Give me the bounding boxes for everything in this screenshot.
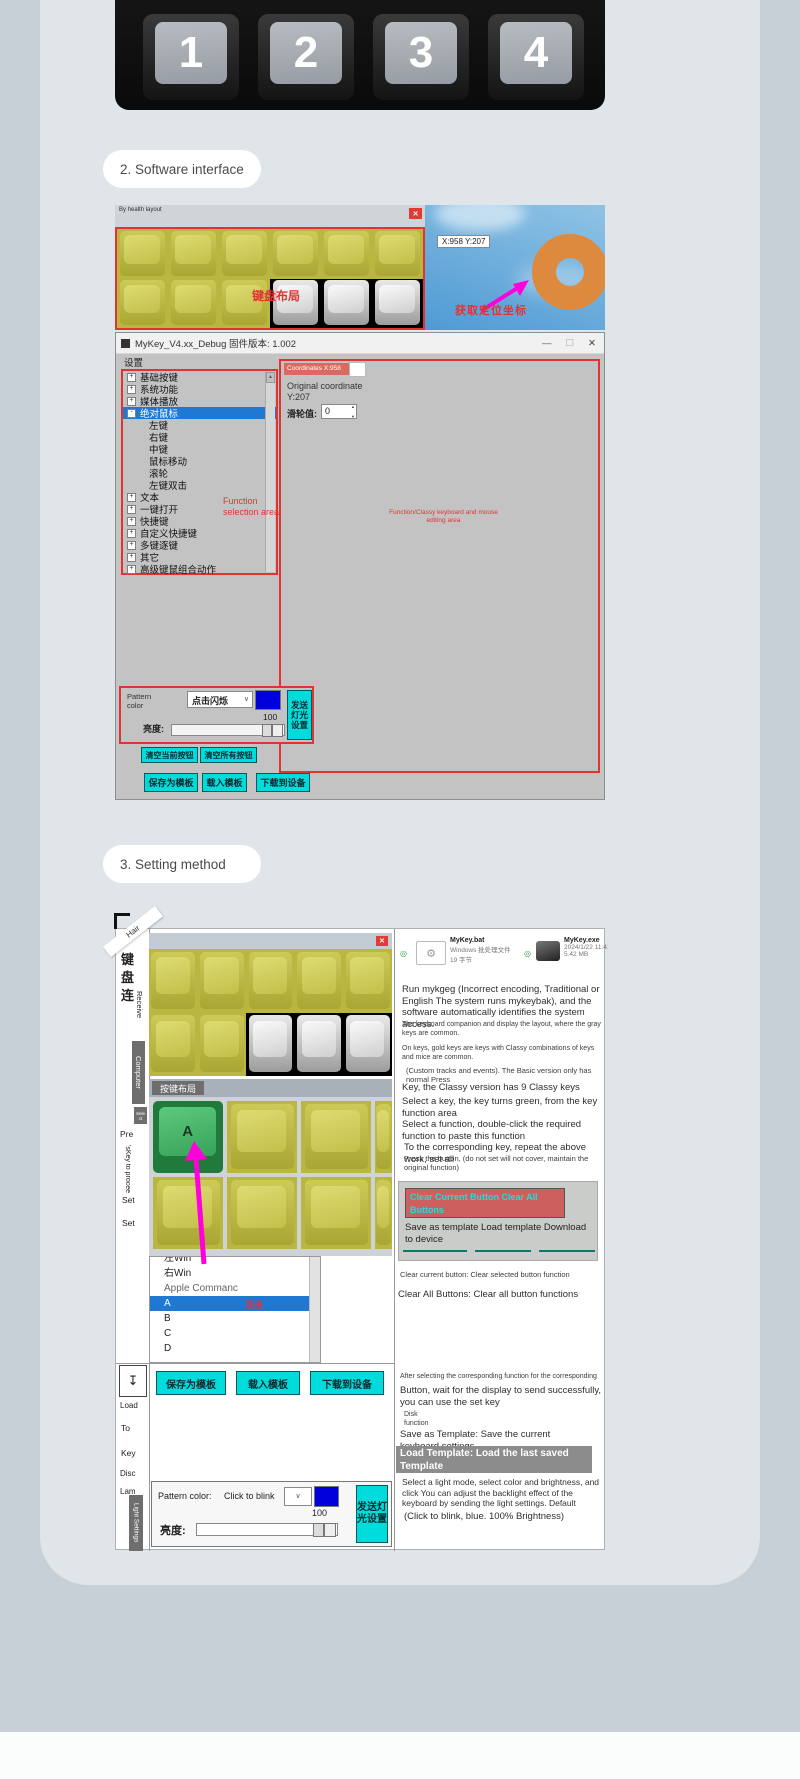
tree-item[interactable]: 鼠标移动 [123,455,276,467]
load-template-highlight: Load Template: Load the last saved Templ… [396,1446,592,1473]
clear-current-button[interactable]: 清空当前按钮 [141,747,198,763]
send-light-button[interactable]: 发送灯光设置 [356,1485,388,1543]
bullet-icon: ◎ [400,949,407,958]
expand-icon[interactable]: + [127,565,136,574]
color-swatch[interactable] [314,1486,339,1507]
expand-icon[interactable]: + [127,529,136,538]
mykey-window: MyKey_V4.xx_Debug 固件版本: 1.002 — ☐ ✕ 设置 +… [115,332,605,800]
expand-icon[interactable]: + [127,505,136,514]
brightness-label: 亮度: [143,722,164,735]
preview-key-grid: 键盘布局 [115,227,425,330]
brightness-value: 100 [312,1508,327,1518]
pattern-color-label: Pattern color: [158,1491,212,1501]
coordinates-input[interactable] [349,362,366,377]
list-item[interactable]: 右Win [150,1266,320,1281]
keycap-4: 4 [488,14,584,100]
keyboard-photo: 1 2 3 4 [115,0,605,110]
app-icon [121,339,130,348]
tree-item[interactable]: 右键 [123,431,276,443]
bullet-icon: ◎ [524,949,531,958]
expand-icon[interactable]: + [127,397,136,406]
mykey-titlebar: MyKey_V4.xx_Debug 固件版本: 1.002 — ☐ ✕ [116,333,604,354]
key-select-list: 左Win 右Win Apple Commanc A 双击 B C D [149,1256,321,1363]
close-icon[interactable]: ✕ [588,338,596,349]
collapse-icon[interactable]: - [127,409,136,418]
clear-buttons-label: Clear Current Button Clear All Buttons [405,1188,565,1218]
close-icon[interactable]: ✕ [409,208,422,219]
selected-key-green: A [153,1101,223,1173]
expand-icon[interactable]: + [127,385,136,394]
brightness-slider[interactable] [171,724,285,736]
sidebar-key-note: 'sKey to procee [124,1145,131,1220]
expand-icon[interactable]: + [127,373,136,382]
tree-item[interactable]: 中键 [123,443,276,455]
desktop-photo: X:958 Y:207 获取定位坐标 [425,205,605,330]
key-layout-window: 按键布局 A [149,1079,392,1256]
sidebar-light-settings: Light Settings [129,1495,143,1551]
spinner-down-icon[interactable]: ▼ [351,414,355,419]
section-2-title: 2. Software interface [103,150,261,188]
expand-icon[interactable]: + [127,493,136,502]
exe-file-icon [536,941,560,961]
list-item[interactable]: 左Win [150,1256,320,1266]
template-buttons-label: Save as template Load template Download … [405,1222,591,1246]
keycap-3: 3 [373,14,469,100]
download-icon: ↧ [119,1365,147,1397]
menu-settings[interactable]: 设置 [124,355,143,369]
pattern-color-label: Pattern color [127,692,167,710]
page: 1 2 3 4 2. Software interface By health … [0,0,800,1779]
save-template-button[interactable]: 保存为模板 [156,1371,226,1395]
sidebar-select: Sele ct [134,1107,147,1124]
setting-guide: Hair 键 盘 连 Receive Computer Sele ct Pre … [115,928,605,1550]
brightness-value: 100 [263,712,277,722]
preview-title: By health layout [119,207,189,214]
list-item[interactable]: Apple Commanc [150,1281,320,1296]
keycap-1-label: 1 [155,22,227,84]
guide-sidebar: 键 盘 连 Receive Computer Sele ct Pre 'sKey… [116,929,150,1551]
selected-key-label: A [159,1107,216,1156]
list-item[interactable]: C [150,1326,320,1341]
window-title: MyKey_V4.xx_Debug 固件版本: 1.002 [135,336,296,350]
bat-file-info: MyKey.bat Windows 批处理文件 19 字节 [450,937,520,964]
tree-annotation: Function selection area [223,496,281,518]
brightness-slider[interactable] [196,1523,338,1536]
list-scrollbar[interactable] [309,1257,320,1362]
pattern-color-value: Click to blink [224,1491,275,1501]
coordinates-header: Coordinates X:958 [284,363,349,375]
locate-coords-label: 获取定位坐标 [455,302,527,318]
disk-function-note: Disk function [404,1411,444,1428]
tree-item[interactable]: +高级键鼠组合动作 [123,563,276,575]
tree-item[interactable]: 左键 [123,419,276,431]
pattern-dropdown[interactable]: ∨ [284,1487,312,1506]
keycap-2-label: 2 [270,22,342,84]
section-3-title: 3. Setting method [103,845,261,883]
spinner-up-icon[interactable]: ▲ [351,404,355,409]
keycap-3-label: 3 [385,22,457,84]
tree-scrollbar[interactable]: ▲ [265,372,275,572]
expand-icon[interactable]: + [127,541,136,550]
keycap-1: 1 [143,14,239,100]
list-item[interactable]: B [150,1311,320,1326]
sidebar-receive: Receive [135,991,144,1018]
wheel-value: 0 [325,406,330,416]
expand-icon[interactable]: + [127,553,136,562]
close-icon: ✕ [376,936,388,946]
list-item[interactable]: D [150,1341,320,1356]
slider-handle[interactable] [313,1523,324,1537]
exe-file-info: MyKey.exe 2024/1/22 11:41 5.42 MB [564,937,608,958]
tree-item[interactable]: 滚轮 [123,467,276,479]
scroll-up-icon[interactable]: ▲ [266,372,275,383]
bat-file-icon: ⚙ [416,941,446,965]
clear-all-button[interactable]: 清空所有按钮 [200,747,257,763]
pattern-dropdown[interactable]: 点击闪烁 ∨ [187,691,253,708]
save-template-button[interactable]: 保存为模板 [144,773,198,792]
chevron-down-icon: ∨ [244,695,249,703]
list-annotation: 双击 [245,1298,263,1313]
light-panel-small: Pattern color: Click to blink ∨ 发送灯光设置 1… [151,1481,392,1547]
brightness-label: 亮度: [160,1522,186,1538]
light-panel: Pattern color 点击闪烁 ∨ 发送灯光设置 100 亮度: [119,686,314,744]
wheel-label: 滑轮值: [287,407,317,420]
editing-panel: Coordinates X:958 Original coordinate Y:… [279,359,600,773]
function-tree-panel: +基础按键 +系统功能 +媒体播放 -绝对鼠标 左键 右键 中键 鼠标移动 滚轮… [121,369,278,575]
key-layout-title: 按键布局 [152,1081,204,1095]
layout-preview-window: By health layout ✕ 键盘布局 [115,205,425,330]
keycap-4-label: 4 [500,22,572,84]
download-device-button[interactable]: 下载到设备 [310,1371,384,1395]
slider-handle[interactable] [262,724,272,737]
maximize-icon[interactable]: ☐ [566,338,575,349]
editing-annotation: Function/Classy keyboard and mouse editi… [386,509,501,525]
minimize-icon[interactable]: — [542,338,552,349]
load-template-button[interactable]: 载入模板 [236,1371,300,1395]
color-swatch[interactable] [255,690,281,710]
wheel-spinner[interactable]: 0 ▲ ▼ [321,404,357,419]
download-device-button[interactable]: 下载到设备 [256,773,310,792]
expand-icon[interactable]: + [127,517,136,526]
bottom-strip [0,1732,800,1779]
original-coordinate: Original coordinate Y:207 [287,381,379,403]
load-template-button[interactable]: 载入模板 [202,773,247,792]
instructions-column: ◎ ⚙ MyKey.bat Windows 批处理文件 19 字节 ◎ MyKe… [396,929,606,1551]
keyboard-layout-label: 键盘布局 [252,287,300,304]
buttons-panel-illustration: Clear Current Button Clear All Buttons S… [398,1181,598,1261]
list-item-selected[interactable]: A 双击 [150,1296,320,1311]
keycap-2: 2 [258,14,354,100]
tree-item-selected[interactable]: -绝对鼠标 [123,407,276,419]
sidebar-computer: Computer [132,1041,145,1104]
send-light-button[interactable]: 发送灯光设置 [287,690,312,740]
layout-preview-small: ✕ [149,933,392,1076]
